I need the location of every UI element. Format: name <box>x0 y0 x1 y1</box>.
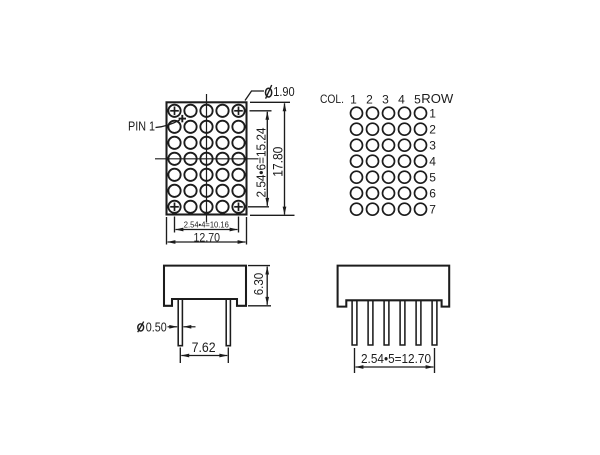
svg-text:1.90: 1.90 <box>273 84 295 99</box>
svg-text:3: 3 <box>382 92 389 106</box>
svg-text:0.50: 0.50 <box>146 320 167 335</box>
svg-text:7: 7 <box>429 203 436 217</box>
svg-text:2.54•4=10.16: 2.54•4=10.16 <box>184 220 229 229</box>
svg-text:5: 5 <box>429 171 436 185</box>
svg-text:17.80: 17.80 <box>270 147 285 177</box>
svg-text:3: 3 <box>429 139 436 153</box>
svg-text:2.54•6=15.24: 2.54•6=15.24 <box>254 128 269 198</box>
svg-text:1: 1 <box>350 92 357 106</box>
svg-text:PIN 1: PIN 1 <box>128 118 155 133</box>
svg-text:2: 2 <box>429 123 436 137</box>
svg-text:ROW: ROW <box>421 92 453 106</box>
svg-text:COL.: COL. <box>320 92 344 106</box>
svg-text:2: 2 <box>366 92 373 106</box>
svg-text:1: 1 <box>429 107 436 121</box>
svg-text:7.62: 7.62 <box>192 340 216 355</box>
svg-text:6: 6 <box>429 187 436 201</box>
svg-text:4: 4 <box>398 92 405 106</box>
svg-text:2.54•5=12.70: 2.54•5=12.70 <box>361 352 431 366</box>
svg-text:5: 5 <box>414 92 421 106</box>
svg-text:12.70: 12.70 <box>194 230 221 244</box>
svg-text:4: 4 <box>429 155 436 169</box>
svg-text:6.30: 6.30 <box>252 273 266 296</box>
